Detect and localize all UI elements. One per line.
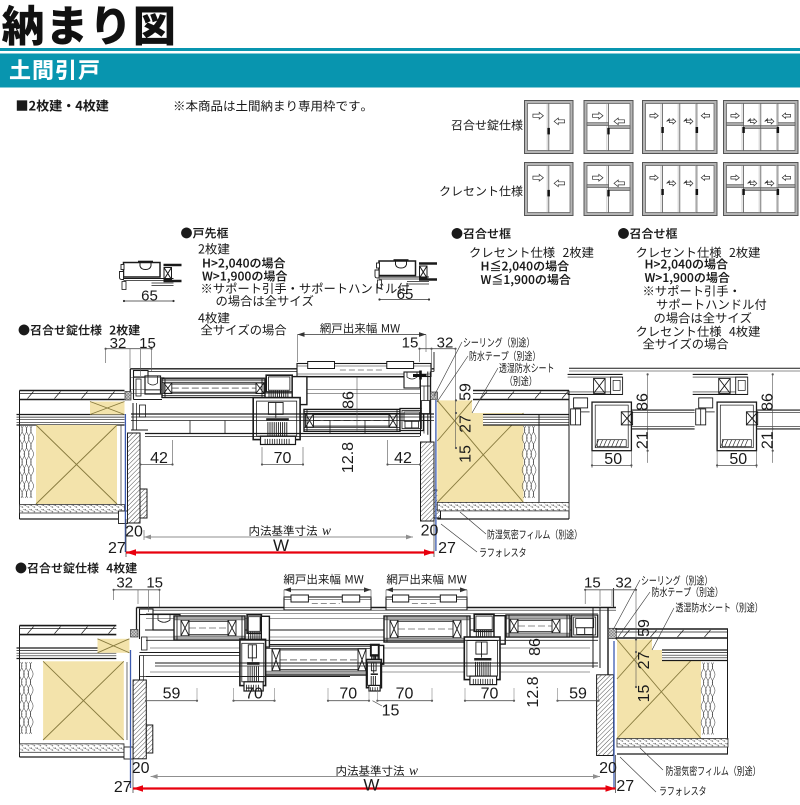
svg-text:70: 70 — [396, 686, 414, 703]
svg-text:27: 27 — [108, 540, 126, 557]
svg-text:70: 70 — [481, 686, 499, 703]
svg-text:15: 15 — [382, 703, 400, 720]
svg-text:21: 21 — [634, 431, 651, 449]
svg-text:27: 27 — [438, 540, 456, 557]
svg-text:27: 27 — [114, 779, 132, 796]
svg-text:w: w — [322, 523, 331, 538]
svg-text:42: 42 — [394, 450, 412, 467]
svg-text:15: 15 — [139, 335, 156, 352]
svg-text:50: 50 — [729, 451, 747, 468]
svg-text:12.8: 12.8 — [525, 676, 542, 707]
svg-text:15: 15 — [457, 445, 474, 463]
svg-text:20: 20 — [132, 760, 150, 777]
svg-text:20: 20 — [125, 524, 143, 541]
svg-text:32: 32 — [437, 335, 454, 352]
svg-text:21: 21 — [760, 431, 777, 449]
svg-text:15: 15 — [584, 575, 601, 592]
svg-text:20: 20 — [599, 760, 617, 777]
svg-text:86: 86 — [341, 391, 358, 409]
svg-text:27: 27 — [636, 652, 653, 670]
svg-text:15: 15 — [636, 685, 653, 703]
svg-text:50: 50 — [604, 451, 622, 468]
svg-text:W: W — [273, 536, 289, 555]
svg-text:70: 70 — [245, 686, 263, 703]
svg-text:59: 59 — [457, 383, 474, 401]
svg-text:59: 59 — [163, 686, 181, 703]
svg-text:W: W — [363, 776, 379, 795]
svg-text:59: 59 — [569, 686, 587, 703]
svg-text:86: 86 — [634, 393, 651, 411]
svg-text:20: 20 — [421, 523, 439, 540]
svg-text:59: 59 — [636, 619, 653, 637]
svg-text:86: 86 — [527, 638, 544, 656]
svg-text:32: 32 — [110, 335, 127, 352]
svg-text:32: 32 — [615, 575, 632, 592]
svg-text:42: 42 — [150, 450, 168, 467]
svg-text:12.8: 12.8 — [340, 442, 357, 473]
svg-text:27: 27 — [616, 778, 634, 795]
svg-text:65: 65 — [397, 286, 414, 303]
svg-text:70: 70 — [339, 686, 357, 703]
svg-text:15: 15 — [402, 335, 419, 352]
svg-text:70: 70 — [274, 450, 292, 467]
svg-text:65: 65 — [141, 288, 158, 305]
svg-text:15: 15 — [146, 575, 163, 592]
svg-text:27: 27 — [457, 415, 474, 433]
svg-text:w: w — [409, 763, 418, 778]
svg-text:86: 86 — [760, 393, 777, 411]
svg-text:32: 32 — [116, 575, 133, 592]
